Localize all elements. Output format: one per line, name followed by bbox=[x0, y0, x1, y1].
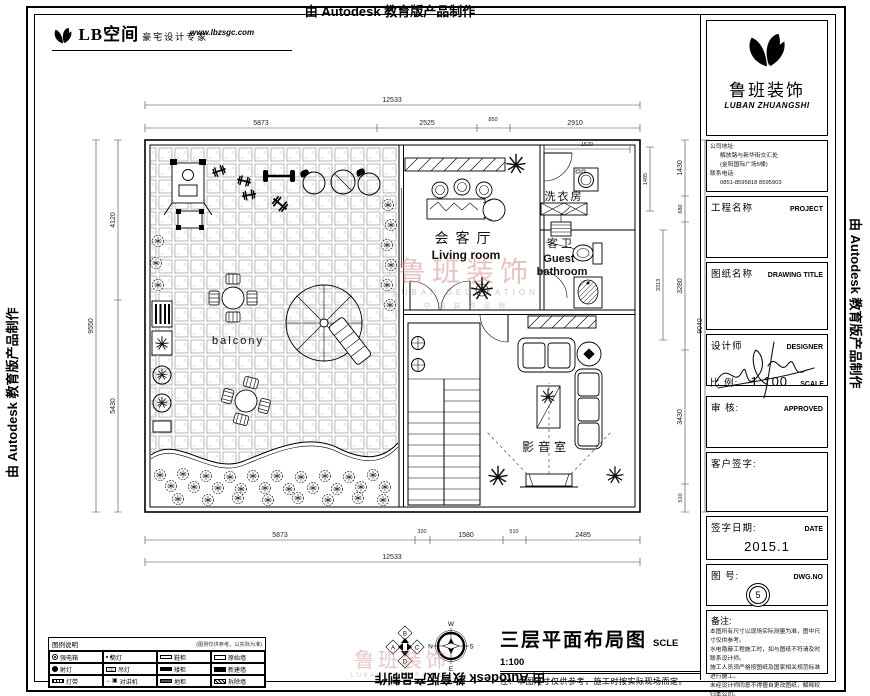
washing-machine bbox=[574, 168, 598, 191]
svg-text:9040: 9040 bbox=[697, 318, 704, 334]
svg-text:3313: 3313 bbox=[656, 279, 662, 291]
pendant-lamp-icon: CD bbox=[106, 667, 116, 672]
leaf-icon bbox=[744, 31, 790, 71]
sofa-three-seat bbox=[575, 369, 602, 449]
svg-text:2525: 2525 bbox=[419, 120, 435, 127]
lb-logo-url: www.lbzsgc.com bbox=[190, 28, 254, 37]
svg-text:5430: 5430 bbox=[110, 398, 117, 414]
svg-text:510: 510 bbox=[678, 493, 684, 502]
media-room-label: 影音室 bbox=[522, 439, 570, 454]
living-room-label-cn: 会客厅 bbox=[435, 230, 498, 246]
remarks-box: 备注: 本图所有尺寸以现场实际测量为准，图中尺寸仅供参考。 水电隐蔽工程施工时，… bbox=[706, 610, 828, 674]
svg-text:S: S bbox=[469, 644, 474, 651]
date-box: 签字日期:DATE 2015.1 bbox=[706, 516, 828, 560]
legend-item: 矮柜 bbox=[157, 663, 211, 675]
svg-text:12533: 12533 bbox=[382, 554, 402, 561]
legend-hint: (图例仅供参考，以实际为准) bbox=[196, 641, 262, 648]
new-wall-icon bbox=[214, 667, 226, 672]
shoe-cabinet-icon bbox=[160, 655, 172, 659]
dwg-number: 5 bbox=[749, 586, 767, 604]
lb-logo: LB空间豪宅设计专家 bbox=[52, 20, 292, 51]
svg-text:680: 680 bbox=[678, 204, 684, 213]
svg-text:W: W bbox=[448, 621, 455, 628]
approved-box: 审 核:APPROVED bbox=[706, 396, 828, 448]
legend-table: 图例说明 (图例仅供参考，以实际为准) 强电箱 筒灯 鞋柜 原始墙 射灯 CD吊… bbox=[48, 637, 266, 688]
sofa-two-seat bbox=[518, 338, 575, 372]
intercom-icon: ←▣ bbox=[106, 678, 118, 684]
company-name-cn: 鲁班装饰 bbox=[707, 76, 827, 101]
shower bbox=[574, 277, 602, 308]
floor-cabinet-icon bbox=[160, 679, 172, 683]
company-name-en: LUBAN ZHUANGSHI bbox=[707, 101, 827, 110]
svg-text:3280: 3280 bbox=[677, 278, 684, 294]
legend-item: 灯带 bbox=[49, 675, 103, 687]
demolished-wall-icon bbox=[214, 679, 226, 684]
guest-bathroom: 客卫 Guest bathroom bbox=[537, 207, 602, 308]
floor-plan: balcony 会客厅 Living room bbox=[78, 83, 710, 575]
svg-text:850: 850 bbox=[488, 117, 497, 123]
coffee-table bbox=[537, 386, 560, 428]
svg-text:2910: 2910 bbox=[567, 120, 583, 127]
dwg-no-box: 图 号:DWG.NO 5 bbox=[706, 564, 828, 606]
company-address-box: 公司地址: 解放路与新华街交汇处 (金阳国际广场5楼) 联系电话: 0851-8… bbox=[706, 140, 828, 192]
legend-item: 筒灯 bbox=[103, 651, 157, 663]
lb-logo-name: LB空间 bbox=[78, 25, 139, 44]
svg-text:3430: 3430 bbox=[677, 409, 684, 425]
balcony-label: balcony bbox=[212, 335, 264, 347]
svg-text:鲁班装饰: 鲁班装饰 bbox=[398, 256, 534, 287]
media-room: 影音室 bbox=[480, 314, 623, 487]
svg-text:中 国 装 饰 品 牌: 中 国 装 饰 品 牌 bbox=[424, 301, 509, 310]
low-cabinet-icon bbox=[160, 667, 172, 671]
legend-item: 地柜 bbox=[157, 675, 211, 687]
downlight-icon bbox=[106, 656, 108, 658]
autodesk-banner-bottom: 由 Autodesk 教育版产品制作 bbox=[310, 670, 610, 689]
tv-unit bbox=[520, 474, 578, 487]
light-strip-icon bbox=[52, 679, 64, 683]
guest-wc-label-en2: bathroom bbox=[537, 266, 588, 278]
original-wall-icon bbox=[214, 655, 226, 660]
plant bbox=[488, 466, 507, 485]
svg-text:1485: 1485 bbox=[643, 173, 649, 185]
company-logo-box: 鲁班装饰 LUBAN ZHUANGSHI bbox=[706, 20, 828, 136]
svg-text:1580: 1580 bbox=[458, 532, 474, 539]
balcony: balcony bbox=[151, 146, 399, 506]
legend-item: 射灯 bbox=[49, 663, 103, 675]
laundry-label: 洗衣房 bbox=[545, 189, 584, 203]
spotlight-icon bbox=[52, 666, 58, 672]
drawing-title-box: 图纸名称DRAWING TITLE bbox=[706, 262, 828, 330]
drawing-title: 三层平面布局图 bbox=[500, 630, 647, 651]
autodesk-banner-top: 由 Autodesk 教育版产品制作 bbox=[240, 1, 540, 20]
power-box-icon bbox=[52, 654, 58, 660]
client-signature-box: 客户签字: bbox=[706, 452, 828, 512]
svg-text:5873: 5873 bbox=[253, 120, 269, 127]
watermark: 鲁班装饰 LUBAN DECORATION 中 国 装 饰 品 牌 bbox=[393, 256, 539, 310]
date-value: 2015.1 bbox=[707, 539, 827, 554]
svg-text:320: 320 bbox=[417, 529, 426, 535]
svg-text:B: B bbox=[403, 632, 407, 638]
svg-text:2485: 2485 bbox=[575, 532, 591, 539]
project-name-box: 工程名称PROJECT bbox=[706, 196, 828, 258]
legend-item: CD吊灯 bbox=[103, 663, 157, 675]
legend-item: ←▣对讲机 bbox=[103, 675, 157, 687]
staircase bbox=[408, 323, 480, 505]
svg-text:1520: 1520 bbox=[581, 142, 593, 148]
autodesk-banner-right: 由 Autodesk 教育版产品制作 bbox=[847, 218, 866, 388]
designer-signature bbox=[710, 330, 828, 402]
svg-text:LUBAN DECORATION: LUBAN DECORATION bbox=[393, 288, 539, 297]
svg-text:12533: 12533 bbox=[382, 97, 402, 104]
svg-text:9550: 9550 bbox=[88, 318, 95, 334]
legend-title: 图例说明 bbox=[52, 639, 78, 649]
legend-item: 原始墙 bbox=[211, 651, 265, 663]
svg-text:5873: 5873 bbox=[272, 532, 288, 539]
svg-text:4120: 4120 bbox=[110, 212, 117, 228]
toilet bbox=[573, 243, 602, 264]
bar-stools bbox=[432, 179, 492, 198]
plant bbox=[607, 466, 624, 483]
legend-item: 新建墙 bbox=[211, 663, 265, 675]
leaf-icon bbox=[52, 24, 74, 48]
legend-item: 鞋柜 bbox=[157, 651, 211, 663]
autodesk-banner-left: 由 Autodesk 教育版产品制作 bbox=[2, 308, 21, 478]
svg-text:1430: 1430 bbox=[677, 160, 684, 176]
cad-sheet: 由 Autodesk 教育版产品制作 由 Autodesk 教育版产品制作 由 … bbox=[0, 0, 870, 696]
legend-item: 强电箱 bbox=[49, 651, 103, 663]
plant bbox=[506, 154, 525, 173]
bar-counter bbox=[427, 199, 505, 221]
svg-text:510: 510 bbox=[509, 529, 518, 535]
laundry-room: 洗衣房 bbox=[541, 153, 598, 215]
guest-wc-label-en1: Guest bbox=[543, 253, 575, 265]
legend-item: 拆除墙 bbox=[211, 675, 265, 687]
